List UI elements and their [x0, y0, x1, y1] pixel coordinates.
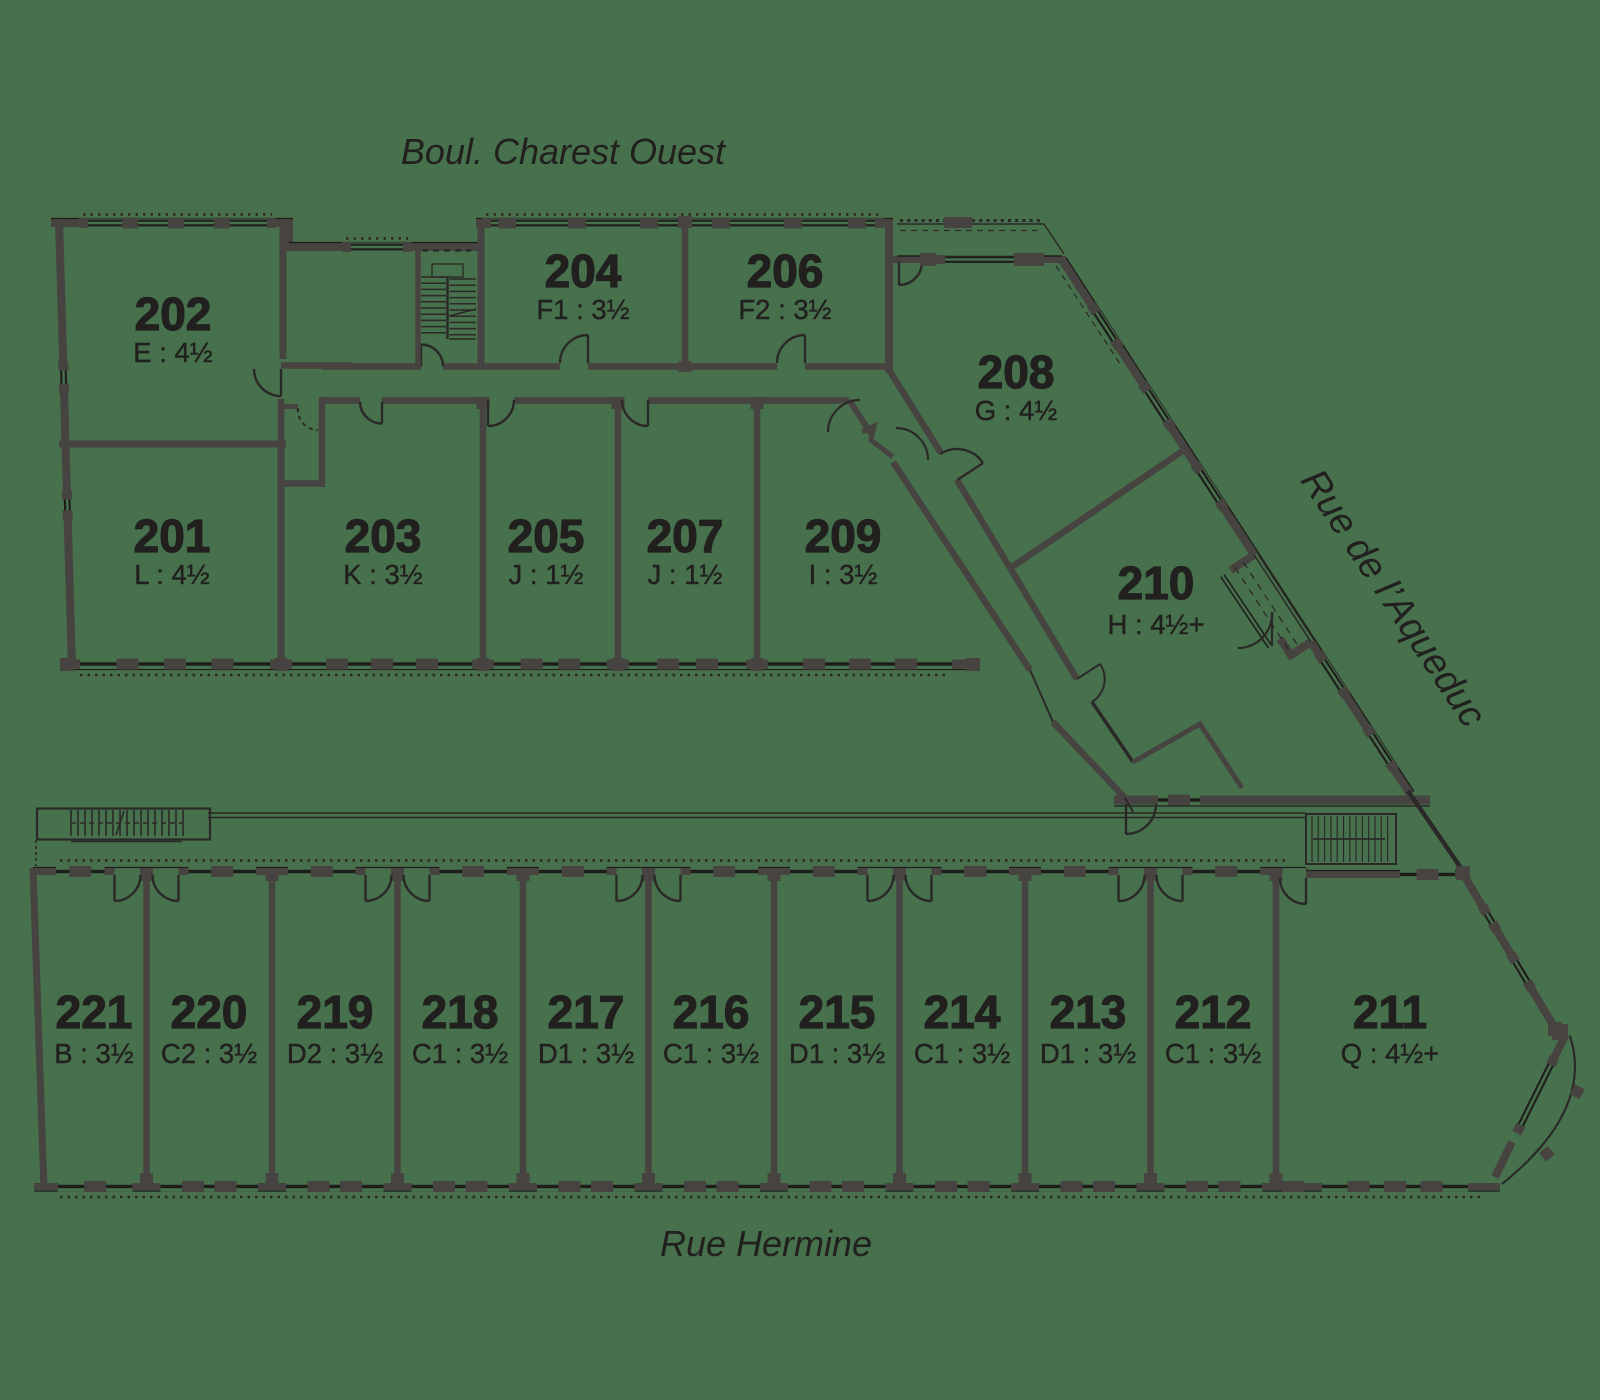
svg-text:C1 : 3½: C1 : 3½ [1165, 1038, 1261, 1069]
svg-text:G : 4½: G : 4½ [975, 395, 1058, 426]
svg-text:H : 4½+: H : 4½+ [1107, 609, 1204, 640]
svg-text:C2 : 3½: C2 : 3½ [161, 1038, 257, 1069]
svg-text:K : 3½: K : 3½ [343, 559, 423, 590]
svg-text:207: 207 [647, 510, 724, 562]
svg-text:211: 211 [1353, 986, 1427, 1038]
svg-text:208: 208 [978, 346, 1055, 398]
svg-text:F1 : 3½: F1 : 3½ [536, 294, 629, 325]
svg-text:205: 205 [508, 510, 585, 562]
svg-text:218: 218 [422, 986, 499, 1038]
svg-text:215: 215 [799, 986, 876, 1038]
svg-text:203: 203 [345, 510, 422, 562]
svg-text:Q : 4½+: Q : 4½+ [1341, 1038, 1440, 1069]
svg-text:221: 221 [56, 986, 133, 1038]
svg-text:219: 219 [297, 986, 374, 1038]
svg-text:C1 : 3½: C1 : 3½ [412, 1038, 508, 1069]
svg-text:L : 4½: L : 4½ [134, 559, 209, 590]
svg-text:C1 : 3½: C1 : 3½ [663, 1038, 759, 1069]
svg-text:213: 213 [1050, 986, 1127, 1038]
svg-text:217: 217 [548, 986, 625, 1038]
svg-text:220: 220 [171, 986, 248, 1038]
svg-text:201: 201 [134, 510, 211, 562]
svg-text:J : 1½: J : 1½ [509, 559, 584, 590]
svg-text:D2 : 3½: D2 : 3½ [287, 1038, 383, 1069]
svg-text:E : 4½: E : 4½ [133, 337, 213, 368]
svg-text:206: 206 [747, 245, 824, 297]
svg-text:D1 : 3½: D1 : 3½ [538, 1038, 634, 1069]
svg-text:214: 214 [924, 986, 1001, 1038]
svg-text:202: 202 [135, 288, 212, 340]
svg-text:Boul. Charest Ouest: Boul. Charest Ouest [401, 131, 727, 172]
svg-text:D1 : 3½: D1 : 3½ [1040, 1038, 1136, 1069]
svg-text:D1 : 3½: D1 : 3½ [789, 1038, 885, 1069]
svg-text:204: 204 [545, 245, 622, 297]
svg-text:209: 209 [805, 510, 882, 562]
svg-text:F2 : 3½: F2 : 3½ [738, 294, 831, 325]
svg-text:I : 3½: I : 3½ [809, 559, 878, 590]
svg-text:Rue Hermine: Rue Hermine [660, 1223, 872, 1264]
svg-text:B : 3½: B : 3½ [54, 1038, 134, 1069]
svg-text:210: 210 [1118, 557, 1195, 609]
svg-text:212: 212 [1175, 986, 1252, 1038]
svg-text:J : 1½: J : 1½ [648, 559, 723, 590]
svg-text:C1 : 3½: C1 : 3½ [914, 1038, 1010, 1069]
svg-text:216: 216 [673, 986, 750, 1038]
